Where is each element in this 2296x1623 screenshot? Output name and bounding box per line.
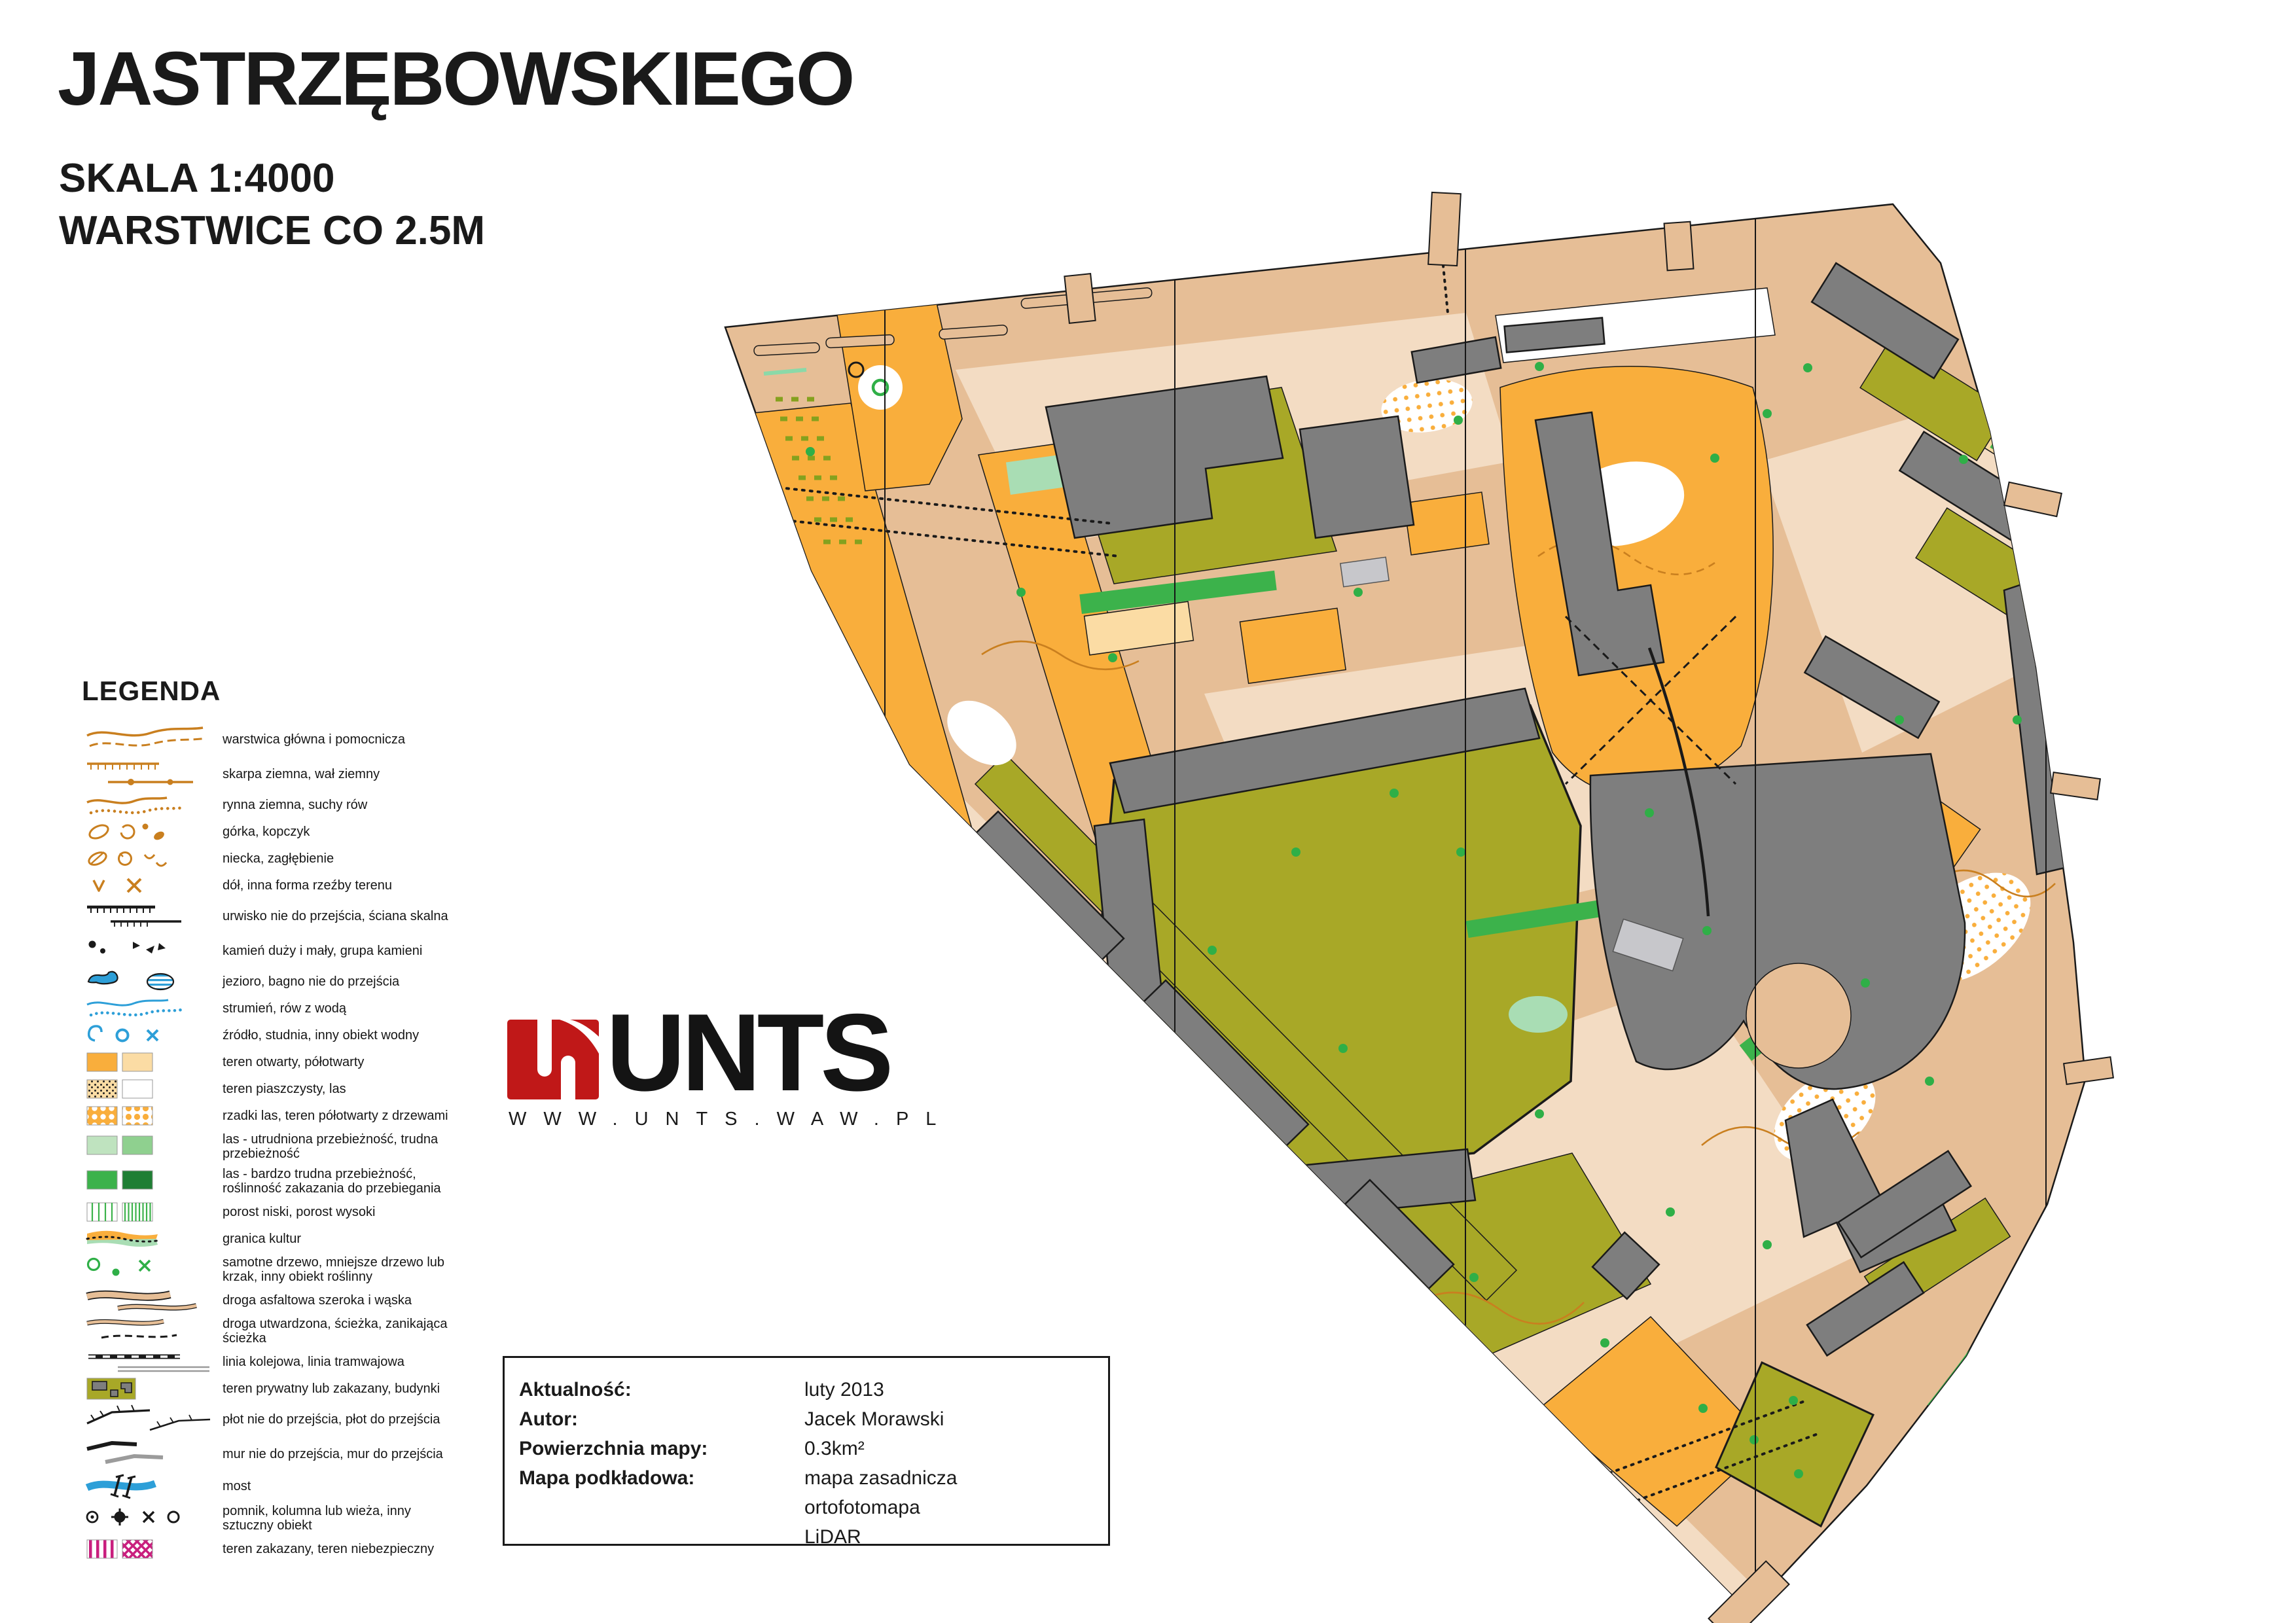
info-label: Powierzchnia mapy: — [519, 1434, 804, 1463]
sandy-ground-icon — [82, 1077, 216, 1101]
info-label: Autor: — [519, 1404, 804, 1434]
legend-item-label: rynna ziemna, suchy rów — [216, 798, 465, 812]
legend-item-label: górka, kopczyk — [216, 825, 465, 839]
legend-item-label: droga asfaltowa szeroka i wąska — [216, 1293, 465, 1308]
legend-item-label: teren prywatny lub zakazany, budynki — [216, 1382, 465, 1396]
railway-tram-icon — [82, 1350, 216, 1374]
info-value: LiDAR — [804, 1522, 957, 1552]
legend-item-label: rzadki las, teren półotwarty z drzewami — [216, 1109, 465, 1123]
legend-item-label: pomnik, kolumna lub wieża, inny sztuczny… — [216, 1504, 465, 1533]
legend-item-label: granica kultur — [216, 1232, 465, 1246]
legend-item: porost niski, porost wysoki — [82, 1200, 501, 1224]
info-label: Mapa podkładowa: — [519, 1463, 804, 1552]
legend-item: rzadki las, teren półotwarty z drzewami — [82, 1104, 501, 1128]
legend-item-label: niecka, zagłębienie — [216, 851, 465, 866]
legend-item: teren zakazany, teren niebezpieczny — [82, 1537, 501, 1561]
info-row: Aktualność: luty 2013 — [519, 1375, 1108, 1404]
info-value: Jacek Morawski — [804, 1404, 944, 1434]
knoll-icon — [82, 820, 216, 844]
legend-item: droga utwardzona, ścieżka, zanikająca śc… — [82, 1315, 501, 1347]
legend-item-label: teren piaszczysty, las — [216, 1082, 465, 1096]
legend-item: mur nie do przejścia, mur do przejścia — [82, 1438, 501, 1470]
unts-logo-wordmark: UNTS — [606, 997, 889, 1107]
legend-item: las - bardzo trudna przebieżność, roślin… — [82, 1166, 501, 1197]
monument-tower-icon — [82, 1503, 216, 1534]
legend-item: samotne drzewo, mniejsze drzewo lub krza… — [82, 1254, 501, 1285]
legend-title: LEGENDA — [82, 675, 501, 707]
unts-logo-icon — [507, 1020, 599, 1099]
legend-item: pomnik, kolumna lub wieża, inny sztuczny… — [82, 1503, 501, 1534]
forest-slow-icon — [82, 1131, 216, 1162]
paved-road-icon — [82, 1289, 216, 1312]
legend-item: górka, kopczyk — [82, 820, 501, 844]
private-area-buildings-icon — [82, 1377, 216, 1400]
legend-item-label: droga utwardzona, ścieżka, zanikająca śc… — [216, 1317, 465, 1346]
legend-item: kamień duży i mały, grupa kamieni — [82, 935, 501, 967]
legend-item: skarpa ziemna, wał ziemny — [82, 758, 501, 790]
info-label: Aktualność: — [519, 1375, 804, 1404]
tree-bush-icon — [82, 1254, 216, 1285]
info-value: mapa zasadnicza — [804, 1463, 957, 1493]
legend-item-label: strumień, rów z wodą — [216, 1001, 465, 1016]
legend-item-label: porost niski, porost wysoki — [216, 1205, 465, 1219]
legend-item-label: most — [216, 1479, 465, 1493]
unts-website: WWW.UNTS.WAW.PL — [509, 1109, 953, 1130]
legend-item: jezioro, bagno nie do przejścia — [82, 970, 501, 993]
info-row: Powierzchnia mapy: 0.3km² — [519, 1434, 1108, 1463]
legend-item: niecka, zagłębienie — [82, 847, 501, 870]
contour-interval-label: WARSTWICE CO 2.5M — [59, 211, 485, 251]
open-land-icon — [82, 1050, 216, 1074]
legend-item-label: linia kolejowa, linia tramwajowa — [216, 1355, 465, 1369]
lake-marsh-icon — [82, 970, 216, 993]
map-poster: JASTRZĘBOWSKIEGO SKALA 1:4000 WARSTWICE … — [0, 0, 2296, 1623]
legend-item: teren otwarty, półotwarty — [82, 1050, 501, 1074]
legend-item-label: las - utrudniona przebieżność, trudna pr… — [216, 1132, 465, 1162]
legend: LEGENDA warstwica główna i pomocnicza sk… — [82, 675, 501, 1564]
legend-item: strumień, rów z wodą — [82, 997, 501, 1020]
legend-item: most — [82, 1473, 501, 1499]
legend-item: dół, inna forma rzeźby terenu — [82, 874, 501, 897]
legend-item: urwisko nie do przejścia, ściana skalna — [82, 901, 501, 932]
legend-item-label: warstwica główna i pomocnicza — [216, 732, 465, 747]
stream-icon — [82, 997, 216, 1020]
legend-item: droga asfaltowa szeroka i wąska — [82, 1289, 501, 1312]
legend-item-label: teren zakazany, teren niebezpieczny — [216, 1542, 465, 1556]
undergrowth-icon — [82, 1200, 216, 1224]
info-value-list: mapa zasadnicza ortofotomapa LiDAR — [804, 1463, 957, 1552]
info-value: 0.3km² — [804, 1434, 865, 1463]
legend-item: granica kultur — [82, 1227, 501, 1251]
legend-item-label: samotne drzewo, mniejsze drzewo lub krza… — [216, 1255, 465, 1285]
depression-icon — [82, 847, 216, 870]
bridge-icon — [82, 1473, 216, 1499]
legend-item-label: kamień duży i mały, grupa kamieni — [216, 944, 465, 958]
legend-item: płot nie do przejścia, płot do przejścia — [82, 1404, 501, 1435]
erosion-gully-icon — [82, 793, 216, 817]
map-round-courtyard — [1746, 963, 1851, 1068]
legend-item: las - utrudniona przebieżność, trudna pr… — [82, 1131, 501, 1162]
legend-item-label: źródło, studnia, inny obiekt wodny — [216, 1028, 465, 1043]
boulders-icon — [82, 935, 216, 967]
legend-item: teren prywatny lub zakazany, budynki — [82, 1377, 501, 1400]
page-title: JASTRZĘBOWSKIEGO — [58, 41, 853, 116]
legend-item: warstwica główna i pomocnicza — [82, 724, 501, 755]
cultivation-boundary-icon — [82, 1227, 216, 1251]
info-row: Autor: Jacek Morawski — [519, 1404, 1108, 1434]
legend-item-label: dół, inna forma rzeźby terenu — [216, 878, 465, 893]
legend-item-label: mur nie do przejścia, mur do przejścia — [216, 1447, 465, 1461]
legend-item: teren piaszczysty, las — [82, 1077, 501, 1101]
footpath-icon — [82, 1315, 216, 1347]
forbidden-area-icon — [82, 1537, 216, 1561]
fence-icon — [82, 1404, 216, 1435]
info-value: ortofotomapa — [804, 1493, 957, 1522]
legend-item: rynna ziemna, suchy rów — [82, 793, 501, 817]
water-object-icon — [82, 1024, 216, 1047]
legend-item-label: skarpa ziemna, wał ziemny — [216, 767, 465, 781]
legend-item-label: jezioro, bagno nie do przejścia — [216, 974, 465, 989]
earth-bank-icon — [82, 758, 216, 790]
legend-item-label: urwisko nie do przejścia, ściana skalna — [216, 909, 465, 923]
info-value: luty 2013 — [804, 1375, 884, 1404]
info-row: Mapa podkładowa: mapa zasadnicza ortofot… — [519, 1463, 1108, 1552]
scattered-trees-icon — [82, 1104, 216, 1128]
forest-fight-icon — [82, 1166, 216, 1197]
map-scale-label: SKALA 1:4000 — [59, 158, 335, 199]
pit-icon — [82, 874, 216, 897]
map-info-box: Aktualność: luty 2013 Autor: Jacek Moraw… — [503, 1356, 1110, 1546]
legend-item: linia kolejowa, linia tramwajowa — [82, 1350, 501, 1374]
legend-item-label: teren otwarty, półotwarty — [216, 1055, 465, 1069]
wall-icon — [82, 1438, 216, 1470]
legend-item-label: las - bardzo trudna przebieżność, roślin… — [216, 1167, 465, 1196]
contour-lines-icon — [82, 724, 216, 755]
legend-item: źródło, studnia, inny obiekt wodny — [82, 1024, 501, 1047]
legend-item-label: płot nie do przejścia, płot do przejścia — [216, 1412, 465, 1427]
cliff-icon — [82, 901, 216, 932]
